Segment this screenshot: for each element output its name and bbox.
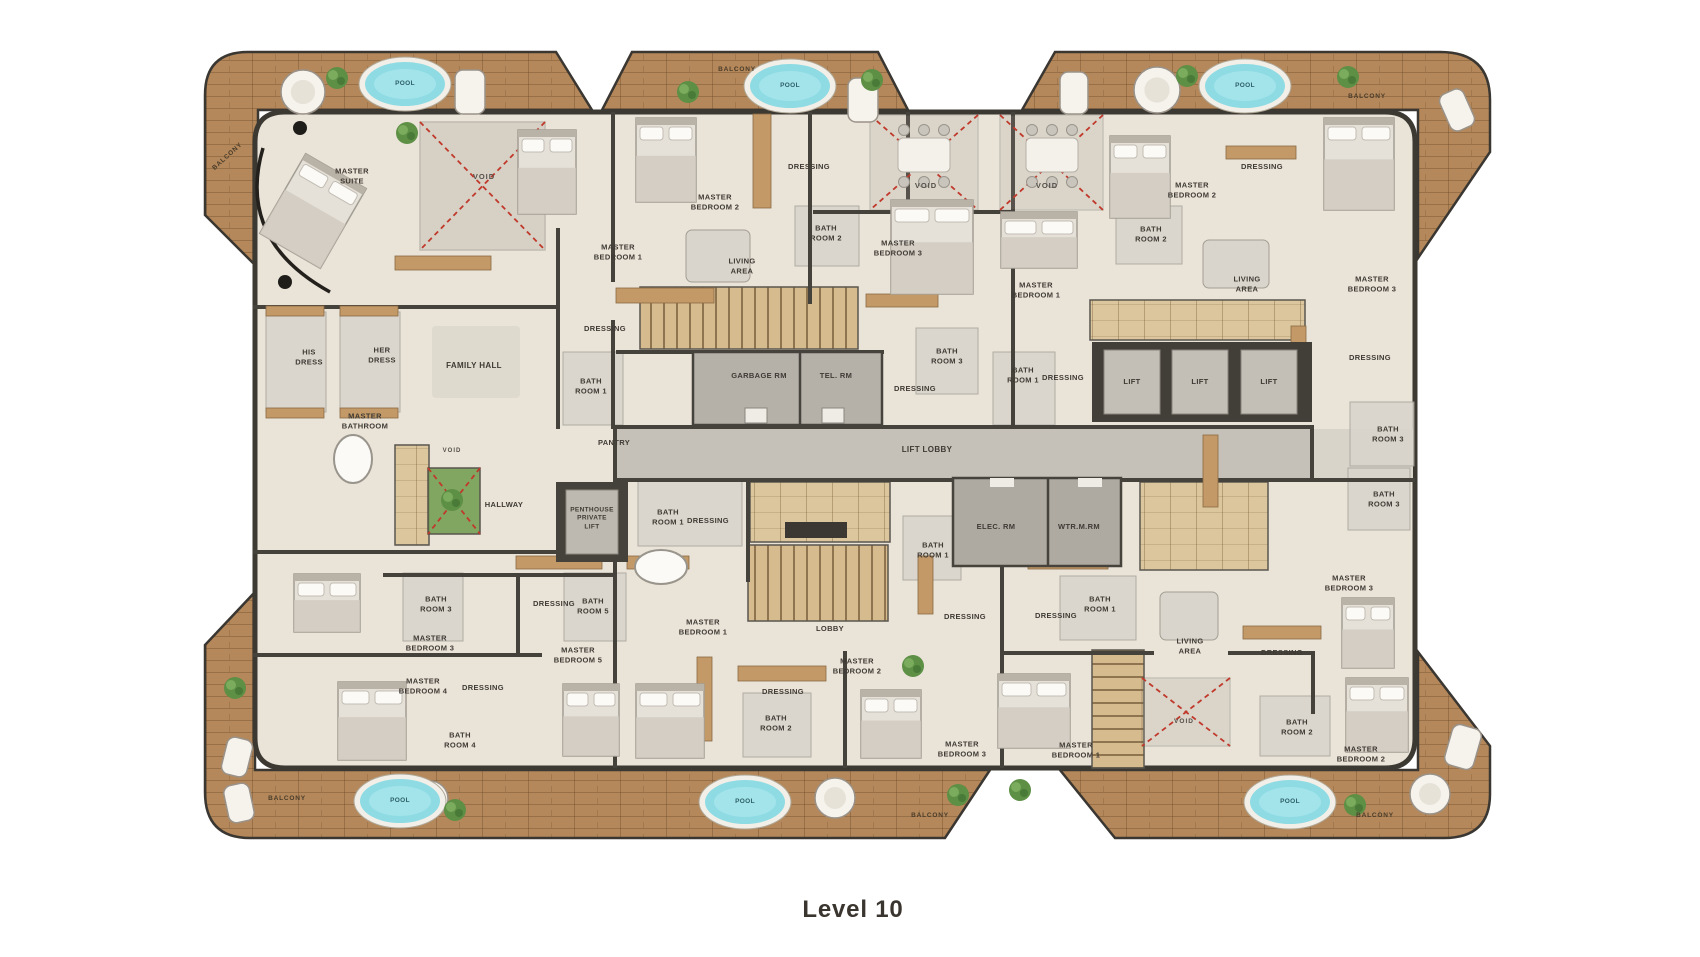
floorplan-page: POOLPOOLPOOLPOOLPOOLPOOLBALCONYBALCONYBA… <box>0 0 1700 957</box>
void-area <box>1142 678 1230 746</box>
bed <box>1342 598 1394 668</box>
bed <box>563 684 619 756</box>
bed <box>338 682 406 760</box>
pool <box>744 59 836 113</box>
bed <box>518 130 576 214</box>
bed <box>1346 678 1408 752</box>
pool <box>354 774 446 828</box>
floorplan-drawing <box>0 0 1700 957</box>
bed <box>1110 136 1170 218</box>
lift-block <box>1092 342 1312 422</box>
pool <box>1244 775 1336 829</box>
penthouse-lift-shaft <box>556 482 628 562</box>
bed <box>1324 118 1394 210</box>
garbage-tel-block <box>693 352 882 425</box>
bed <box>636 118 696 202</box>
level-caption: Level 10 <box>802 896 903 924</box>
pool <box>1199 59 1291 113</box>
bed <box>998 674 1070 748</box>
bed <box>891 200 973 294</box>
elec-wtr-block <box>953 478 1121 566</box>
bed <box>294 574 360 632</box>
bed <box>861 690 921 758</box>
bed <box>1001 212 1077 268</box>
bed <box>636 684 704 758</box>
pool <box>359 57 451 111</box>
pool <box>699 775 791 829</box>
